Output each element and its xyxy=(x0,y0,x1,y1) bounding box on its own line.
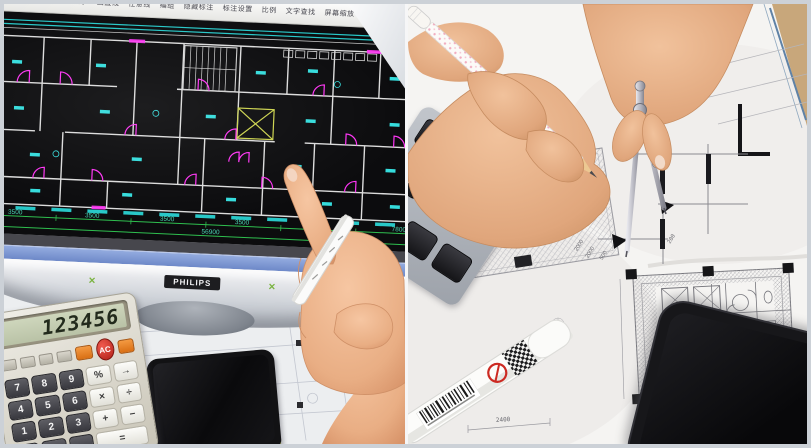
minus-key: − xyxy=(119,403,146,426)
compass-hand xyxy=(583,4,753,257)
divide-key: ÷ xyxy=(116,381,143,404)
memory-key xyxy=(4,358,17,371)
memory-key xyxy=(38,352,54,365)
cad-menu-item: 任意线 xyxy=(128,4,151,10)
digit-key: 3 xyxy=(65,412,92,435)
clear-entry-key xyxy=(75,345,93,361)
right-photo-drafting-scene: 2000 2000 500 200 2400 xyxy=(408,4,807,444)
cad-menu-item: 编组 xyxy=(160,4,175,11)
desk-calculator: 123456 AC 7 8 9 % → 4 5 6 × xyxy=(4,291,160,444)
calculator-display-value: 123456 xyxy=(40,304,121,340)
digit-key: 00 xyxy=(41,438,68,444)
digit-key: . xyxy=(68,433,95,444)
forearm xyxy=(583,4,753,126)
digit-key: 8 xyxy=(31,373,58,396)
multiply-key: × xyxy=(89,386,116,409)
digit-key: 4 xyxy=(7,399,34,422)
collage-inner: 图层特性图框调整文字画直线任意线编组隐藏标注标注设置比例文字查找屏幕缩放打印编号… xyxy=(4,4,807,444)
cad-menu-item: 文字查找 xyxy=(285,6,315,17)
smartphone-screen xyxy=(637,310,807,444)
cad-menu-item: 标注设置 xyxy=(222,4,252,15)
cad-menu-item: 图框调整 xyxy=(34,4,64,6)
correct-key xyxy=(117,338,135,354)
digit-key: 2 xyxy=(38,416,65,439)
photo-collage: 图层特性图框调整文字画直线任意线编组隐藏标注标注设置比例文字查找屏幕缩放打印编号… xyxy=(0,0,811,448)
marker-pen xyxy=(408,315,575,444)
memory-key xyxy=(56,349,72,362)
cad-menu-item: 文字 xyxy=(73,4,88,7)
pointing-hand xyxy=(202,142,405,444)
digit-key: 6 xyxy=(62,390,89,413)
digit-key: 0 xyxy=(14,442,41,444)
plus-key: + xyxy=(92,407,119,430)
left-photo-cad-monitor-scene: 图层特性图框调整文字画直线任意线编组隐藏标注标注设置比例文字查找屏幕缩放打印编号… xyxy=(4,4,405,444)
memory-key xyxy=(19,355,35,368)
cad-menu-item: 画直线 xyxy=(97,4,120,9)
digit-key: 1 xyxy=(11,420,38,443)
backspace-key: → xyxy=(112,360,139,383)
cad-menu-item: 比例 xyxy=(261,5,276,16)
percent-key: % xyxy=(85,364,112,387)
pencil-hand xyxy=(408,4,610,248)
all-clear-key: AC xyxy=(94,337,115,362)
cad-menu-item: 屏幕缩放 xyxy=(324,8,354,19)
digit-key: 5 xyxy=(34,394,61,417)
cad-menu-item: 隐藏标注 xyxy=(184,4,214,13)
cable-clip-icon: ✕ xyxy=(88,276,97,285)
digit-key: 7 xyxy=(4,377,31,400)
digit-key: 9 xyxy=(58,368,85,391)
compass-knob xyxy=(635,81,645,91)
